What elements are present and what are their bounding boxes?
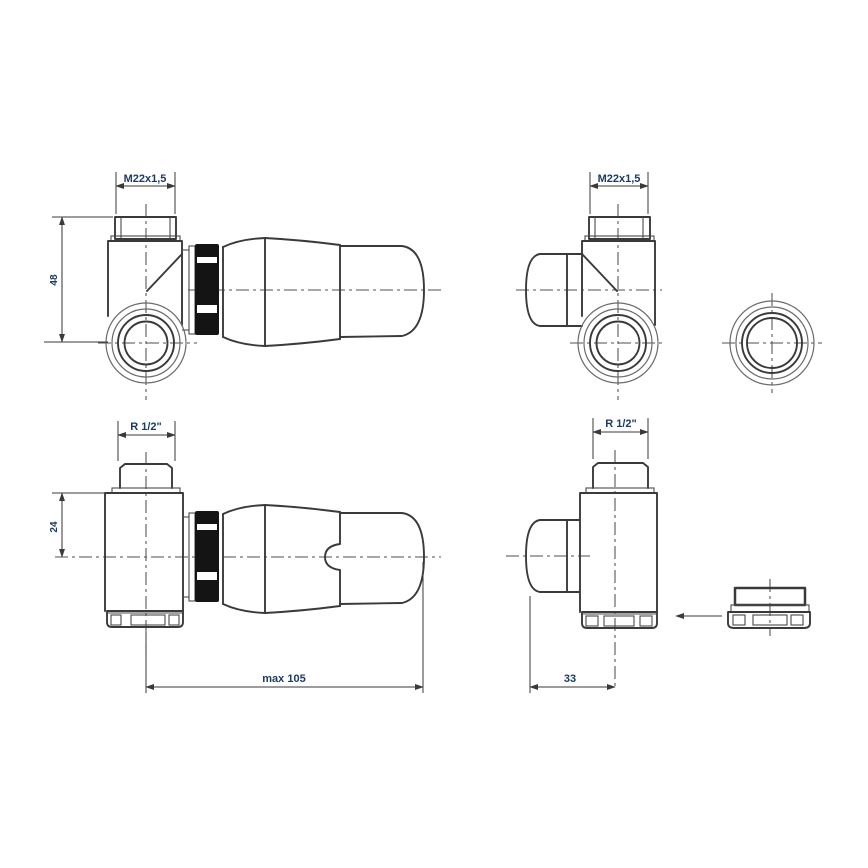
dim-label-thread-bottom-right: R 1/2" [605,418,637,430]
dim-label-thread-bottom-left: R 1/2" [130,421,162,433]
nut-slot [733,615,745,625]
hex-stub [593,463,648,488]
adapter-ring-slot [197,305,217,313]
nut-slot [131,615,165,625]
dim-label-thread-top-left: M22x1,5 [124,173,167,185]
nut-slot [791,615,803,625]
view-top-left-valve-with-head: M22x1,5 48 [44,172,441,400]
valve-body [580,493,657,612]
dim-label-33: 33 [564,673,576,685]
technical-drawing-page: M22x1,5 48 M22x1,5 [0,0,868,868]
dim-label-max-105: max 105 [262,673,305,685]
nut-slot [586,616,598,626]
view-bottom-right-valve-body: R 1/2" 33 [506,418,657,693]
adapter-ring-slot [197,572,217,580]
head-top-edge [223,505,340,514]
nut-base [728,612,810,628]
nut-slot [169,615,179,625]
head-cap [340,513,424,604]
adapter-ring-slot [197,524,217,530]
nut-slot [111,615,121,625]
body-chamfer-edge [582,254,617,291]
body-chamfer-edge [147,254,182,291]
head-cap [340,246,424,337]
dim-label-thread-top-right: M22x1,5 [598,173,641,185]
part-gasket-ring-front [722,293,822,393]
dim-label-height-24: 24 [49,521,60,533]
dim-label-height-48: 48 [49,274,60,286]
view-bottom-left-valve-with-head: R 1/2" 24 max 105 [49,421,441,693]
head-cap-joint-notch [325,512,340,606]
nut-slot [640,616,652,626]
view-top-right-valve-body: M22x1,5 [516,172,666,400]
adapter-ring-slot [197,257,217,263]
head-top-edge [223,238,340,247]
valve-body [105,493,183,611]
valve-drawing-svg: M22x1,5 48 M22x1,5 [0,0,868,868]
part-union-nut-side [676,579,810,636]
head-bottom-edge [223,604,340,613]
nut-slot [604,616,634,626]
head-bottom-edge [223,337,340,346]
